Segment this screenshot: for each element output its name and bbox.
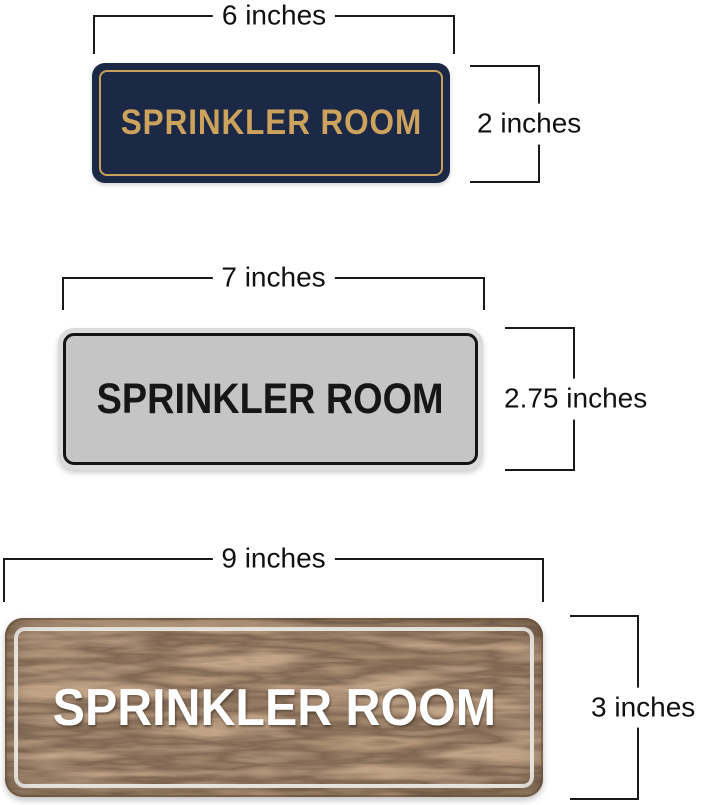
- height-dimension-bracket-silver: 2.75 inches: [505, 327, 575, 471]
- sign-text: SPRINKLER ROOM: [120, 103, 421, 143]
- sprinkler-sign-navy: SPRINKLER ROOM: [92, 63, 450, 183]
- width-dimension-bracket-navy: 6 inches: [93, 15, 455, 54]
- height-dimension-bracket-navy: 2 inches: [470, 65, 540, 183]
- sign-text: SPRINKLER ROOM: [97, 375, 444, 424]
- width-dimension-bracket-walnut: 9 inches: [3, 558, 544, 602]
- width-dimension-label: 7 inches: [212, 262, 334, 295]
- width-dimension-label: 9 inches: [212, 543, 334, 576]
- width-dimension-label: 6 inches: [213, 0, 335, 32]
- height-dimension-label: 3 inches: [587, 687, 699, 728]
- height-dimension-label: 2.75 inches: [500, 379, 651, 420]
- product-size-diagram: 6 inches SPRINKLER ROOM 2 inches 7 inche…: [0, 0, 722, 805]
- height-dimension-bracket-walnut: 3 inches: [570, 615, 639, 800]
- height-dimension-label: 2 inches: [473, 104, 585, 145]
- sign-text: SPRINKLER ROOM: [52, 678, 495, 738]
- sprinkler-sign-silver: SPRINKLER ROOM: [58, 328, 483, 470]
- sprinkler-sign-walnut: SPRINKLER ROOM: [5, 618, 543, 797]
- width-dimension-bracket-silver: 7 inches: [62, 277, 485, 310]
